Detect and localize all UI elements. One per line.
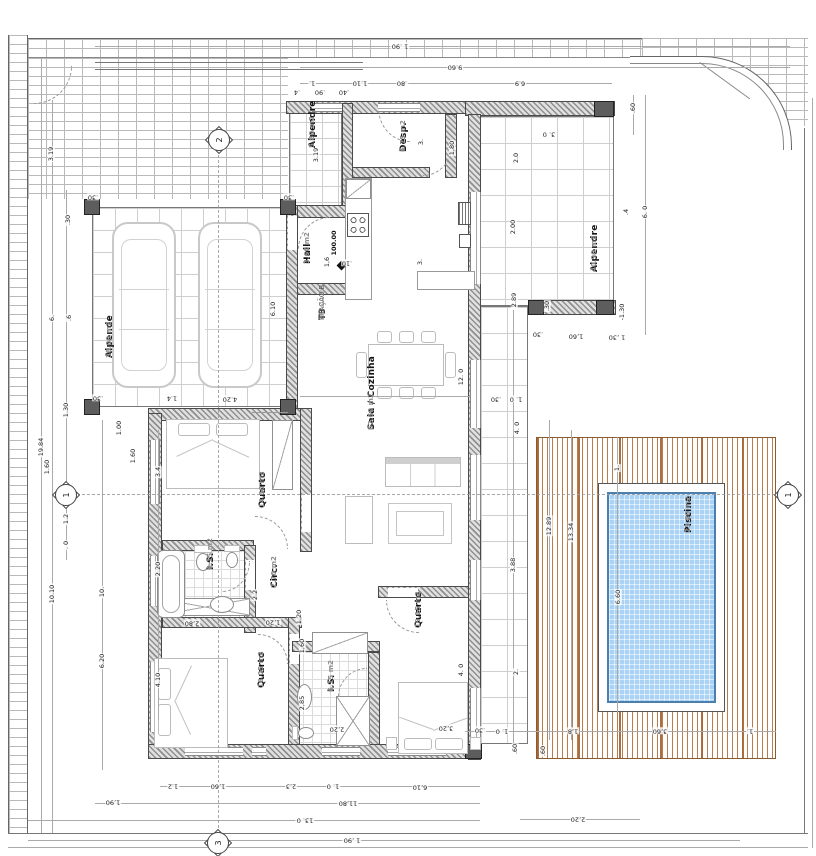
dim-label: 1.60	[44, 459, 51, 475]
room-area: 2.70 m2	[270, 556, 278, 588]
dim-label: 19.84	[38, 437, 45, 458]
dim-label: 1.30	[63, 402, 70, 418]
dim-label: .40	[338, 89, 350, 96]
room-area: 23.80 m2	[684, 496, 692, 533]
dim-label: 1,80	[449, 140, 456, 156]
room-area: 14.60 m2	[258, 471, 266, 508]
dim-label: .30	[92, 395, 104, 402]
dim-label: 4. 0	[458, 663, 465, 677]
dim-label: 10.	[99, 586, 106, 598]
dim-label: 2,20	[329, 726, 345, 733]
dim-label: 11,80	[338, 800, 359, 807]
room-area: 6.15 m2	[206, 538, 214, 570]
section-marker: 3	[204, 829, 232, 856]
dim-label: .30	[544, 300, 551, 312]
dim-label: . 0	[63, 540, 70, 550]
dim-label: 1 ,30	[608, 334, 627, 341]
dim-label: 3,20	[438, 725, 454, 732]
dim-label: 13. 0	[296, 817, 315, 824]
dim-label: 2,85	[299, 695, 306, 711]
dim-label: 1.20	[296, 609, 303, 625]
dim-label: 1,90	[105, 799, 121, 806]
dim-label: .30	[490, 396, 502, 403]
dim-label: .10	[341, 260, 353, 267]
dim-label: 1.2	[167, 783, 179, 790]
dim-label: 1,60	[210, 783, 226, 790]
dim-label: 3,60	[652, 728, 668, 735]
room-area: 40.90 m2	[590, 235, 598, 272]
dim-label: 1,20	[265, 619, 281, 626]
dim-label: .30	[283, 194, 295, 201]
dim-label: 1.60	[130, 448, 137, 464]
dim-label: .60	[630, 102, 637, 114]
dim-label: 2.	[513, 668, 520, 676]
dim-label: .60	[512, 743, 519, 755]
dim-label: 3.88	[510, 557, 517, 573]
dim-label: 3.19	[313, 147, 320, 163]
dim-label: .4	[293, 89, 301, 96]
level-marker-text: 100.00	[330, 230, 338, 255]
dim-label: 2,3	[285, 783, 297, 790]
dim-label: 6.9	[514, 80, 526, 87]
dim-label: 1. 0	[326, 783, 340, 790]
dim-label: 3.	[418, 138, 425, 146]
dim-label: 3.4	[155, 466, 162, 478]
section-marker-number: 2	[205, 126, 233, 154]
dim-label: 4.20	[222, 396, 238, 403]
section-marker-number: 3	[204, 829, 232, 856]
dim-label: .30	[87, 194, 99, 201]
dim-label: 1.	[308, 80, 316, 87]
dim-label: .30	[65, 214, 72, 226]
dim-label: .30	[532, 331, 544, 338]
dim-label: 4.10	[155, 672, 162, 688]
dim-label: 2.0	[513, 152, 520, 164]
dim-label: 1.	[746, 728, 754, 735]
dim-label: 3. 0	[542, 131, 556, 138]
floor-plan-canvas: T3 FRAÇÃO B 247.40 m2 100.00 1 .909.601.…	[0, 0, 816, 856]
dim-label: 1. 0	[495, 728, 509, 735]
dim-label: 6.10	[270, 301, 277, 317]
dim-label: 6.60	[615, 589, 622, 605]
dim-label: .80	[396, 80, 408, 87]
dim-label: 4. 0	[514, 421, 521, 435]
dim-label: 1,60	[568, 333, 584, 340]
dim-label: 1.4	[166, 395, 178, 402]
dim-label: 2.2	[252, 589, 259, 601]
dim-label: 6.20	[99, 653, 106, 669]
dim-label: 2.20	[155, 561, 162, 577]
dim-label: .4	[623, 208, 630, 216]
dim-label: .6	[66, 314, 73, 322]
dim-label: 13.34	[568, 522, 575, 543]
dim-label: 12.89	[546, 516, 553, 537]
dim-label: -1.30	[619, 303, 626, 322]
dim-label: 1,8	[567, 728, 579, 735]
section-marker: 1	[774, 481, 802, 509]
room-area: 5.80 m2	[308, 116, 316, 148]
dim-label: 1.2	[63, 513, 70, 525]
dim-label: 2.00	[510, 219, 517, 235]
room-area: 3.60 m2	[303, 232, 311, 264]
dim-label: 2,80	[184, 620, 200, 627]
room-area: 6,15 m2	[327, 660, 335, 692]
room-area: 16.05 m2	[257, 651, 265, 688]
dim-label: 2,20	[570, 816, 586, 823]
dim-label: 6,10	[412, 784, 428, 791]
dim-label: 10.10	[49, 584, 56, 605]
unit-area-label: 247.40 m2	[318, 285, 326, 320]
dim-label: .60	[540, 745, 547, 757]
section-marker-number: 1	[52, 481, 80, 509]
room-area: 19.15 m2	[414, 591, 422, 628]
dim-label: 1. 0	[509, 396, 523, 403]
dim-label: 1.10	[352, 80, 368, 87]
dim-label: 1,6	[324, 256, 331, 268]
dim-label: .30	[474, 727, 486, 734]
dim-label: 3.19	[48, 146, 55, 162]
dim-label: 1,60	[299, 638, 306, 654]
dim-label: 3.	[417, 258, 424, 266]
annotations-layer: T3 FRAÇÃO B 247.40 m2 100.00 1 .909.601.…	[0, 0, 816, 856]
dim-label: 9.60	[447, 64, 463, 71]
room-area: 6.75 m2	[399, 120, 407, 152]
dim-label: 12. 0	[458, 368, 465, 387]
room-area: 62.60 m2	[367, 393, 375, 430]
dim-label: 1 ,90	[343, 837, 362, 844]
section-marker: 2	[205, 126, 233, 154]
dim-label: 2.89	[511, 292, 518, 308]
dim-label: 6.	[49, 314, 56, 322]
section-marker-number: 1	[774, 481, 802, 509]
dim-label: 6. 0	[642, 205, 649, 219]
dim-label: 1.00	[116, 420, 123, 436]
dim-label: 1.	[614, 464, 621, 472]
section-marker: 1	[52, 481, 80, 509]
room-area: 38.00 m2	[105, 321, 113, 358]
dim-label: .90	[314, 89, 326, 96]
dim-label: 1 .90	[391, 43, 410, 50]
